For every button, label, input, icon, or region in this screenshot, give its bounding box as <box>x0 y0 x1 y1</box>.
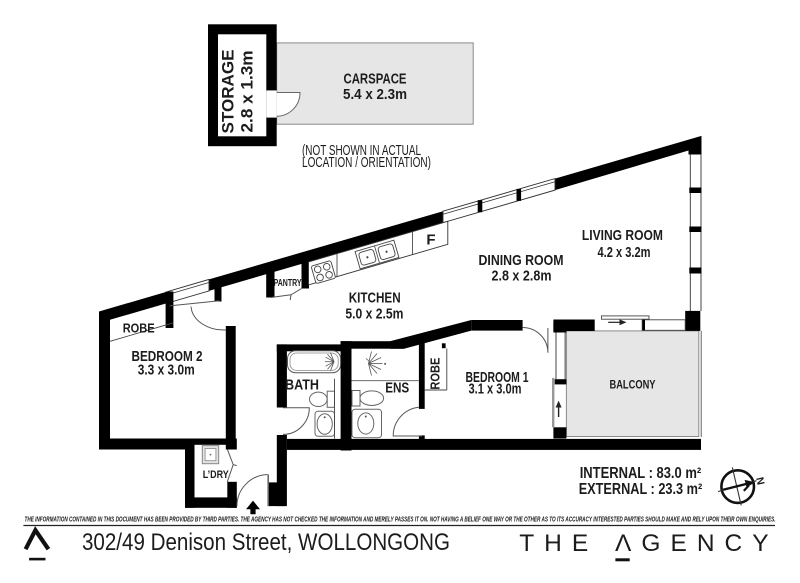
svg-text:CARSPACE: CARSPACE <box>344 72 407 88</box>
svg-text:4.2 x 3.2m: 4.2 x 3.2m <box>598 244 651 261</box>
svg-text:5.4 x 2.3m: 5.4 x 2.3m <box>343 87 407 103</box>
svg-text:ROBE: ROBE <box>429 358 443 390</box>
svg-text:ENS: ENS <box>385 379 409 396</box>
svg-text:BALCONY: BALCONY <box>610 378 656 392</box>
svg-text:2.8 x 2.8m: 2.8 x 2.8m <box>492 268 552 285</box>
svg-text:THE ΛGENCY: THE ΛGENCY <box>519 530 768 557</box>
svg-text:5.0 x 2.5m: 5.0 x 2.5m <box>345 305 403 322</box>
svg-text:INTERNAL : 83.0 m²: INTERNAL : 83.0 m² <box>580 465 702 482</box>
svg-text:L’DRY: L’DRY <box>203 469 230 481</box>
svg-text:EXTERNAL : 23.3 m²: EXTERNAL : 23.3 m² <box>579 481 703 498</box>
svg-text:3.3 x 3.0m: 3.3 x 3.0m <box>138 361 195 378</box>
svg-text:LIVING ROOM: LIVING ROOM <box>582 227 663 244</box>
svg-text:THE INFORMATION CONTAINED IN T: THE INFORMATION CONTAINED IN THIS DOCUME… <box>25 516 776 523</box>
svg-text:KITCHEN: KITCHEN <box>349 290 401 307</box>
svg-text:F: F <box>426 232 435 249</box>
svg-text:3.1 x 3.0m: 3.1 x 3.0m <box>469 380 522 397</box>
svg-text:2.8 x 1.3m: 2.8 x 1.3m <box>239 51 257 133</box>
svg-text:ROBE: ROBE <box>123 322 155 336</box>
svg-text:BATH: BATH <box>285 376 319 393</box>
svg-text:LOCATION / ORIENTATION): LOCATION / ORIENTATION) <box>302 155 431 171</box>
svg-text:STORAGE: STORAGE <box>220 50 238 134</box>
svg-text:302/49 Denison Street, WOLLONG: 302/49 Denison Street, WOLLONGONG <box>82 529 450 556</box>
svg-text:PANTRY: PANTRY <box>274 278 302 289</box>
